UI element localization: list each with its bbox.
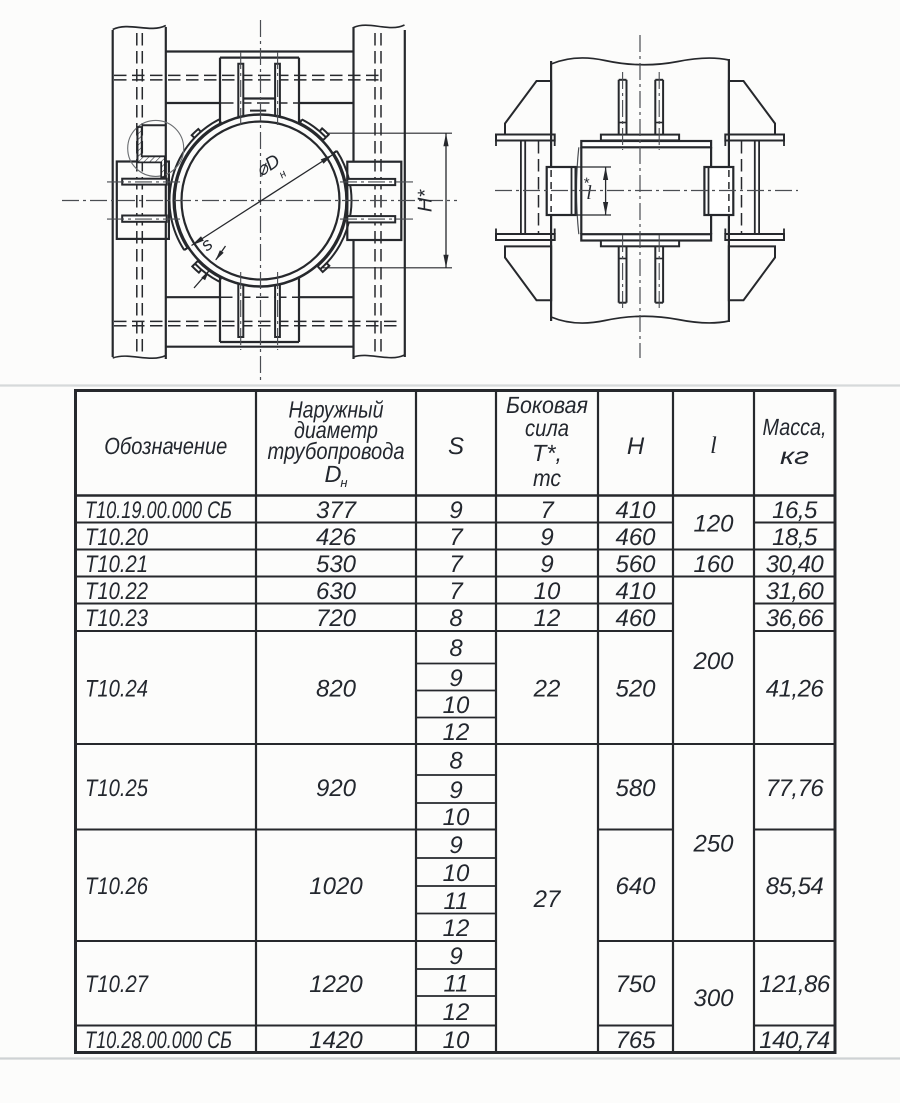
- svg-text:10: 10: [443, 692, 470, 719]
- svg-text:9: 9: [449, 943, 462, 970]
- svg-text:9: 9: [449, 497, 462, 524]
- svg-text:9: 9: [540, 524, 553, 551]
- svg-text:8: 8: [449, 605, 463, 632]
- svg-text:140,74: 140,74: [759, 1027, 830, 1054]
- svg-text:200: 200: [692, 648, 734, 675]
- svg-text:250: 250: [692, 831, 734, 858]
- svg-text:Т10.19.00.000 СБ: Т10.19.00.000 СБ: [85, 497, 232, 524]
- svg-text:9: 9: [449, 777, 462, 804]
- svg-text:12: 12: [443, 915, 470, 942]
- svg-text:9: 9: [449, 832, 462, 859]
- svg-text:77,76: 77,76: [766, 775, 825, 802]
- svg-text:720: 720: [316, 605, 357, 632]
- svg-text:7: 7: [449, 524, 464, 551]
- svg-text:460: 460: [615, 524, 656, 551]
- svg-text:31,60: 31,60: [766, 578, 825, 605]
- svg-text:Обозначение: Обозначение: [104, 433, 227, 459]
- svg-text:7: 7: [449, 578, 464, 605]
- svg-text:8: 8: [449, 748, 463, 775]
- svg-text:7: 7: [540, 497, 555, 524]
- svg-text:Т10.23: Т10.23: [85, 605, 149, 632]
- svg-text:н: н: [340, 475, 347, 490]
- svg-text:l: l: [710, 433, 717, 459]
- svg-text:12: 12: [534, 605, 561, 632]
- svg-text:кг: кг: [780, 443, 810, 469]
- svg-text:580: 580: [615, 775, 656, 802]
- svg-text:Т10.20: Т10.20: [85, 524, 149, 551]
- svg-text:1020: 1020: [309, 873, 363, 900]
- svg-text:12: 12: [443, 719, 470, 746]
- svg-text:18,5: 18,5: [772, 524, 818, 551]
- svg-text:377: 377: [316, 497, 358, 524]
- svg-text:85,54: 85,54: [766, 873, 824, 900]
- svg-text:10: 10: [443, 1027, 470, 1054]
- svg-text:10: 10: [534, 578, 561, 605]
- svg-text:120: 120: [693, 511, 734, 538]
- svg-text:36,66: 36,66: [766, 605, 825, 632]
- svg-text:460: 460: [615, 605, 656, 632]
- svg-text:426: 426: [316, 524, 357, 551]
- svg-text:Т10.22: Т10.22: [85, 578, 148, 605]
- svg-text:820: 820: [316, 676, 357, 703]
- svg-text:Т10.21: Т10.21: [85, 551, 148, 578]
- svg-text:22: 22: [533, 676, 561, 703]
- svg-text:Масса,: Масса,: [763, 414, 827, 440]
- svg-text:30,40: 30,40: [766, 551, 825, 578]
- svg-text:920: 920: [316, 775, 357, 802]
- svg-text:D: D: [325, 461, 342, 487]
- svg-text:9: 9: [540, 551, 553, 578]
- svg-text:16,5: 16,5: [772, 497, 818, 524]
- svg-text:520: 520: [615, 676, 656, 703]
- svg-text:11: 11: [444, 888, 469, 915]
- svg-text:121,86: 121,86: [759, 971, 831, 998]
- svg-text:1220: 1220: [309, 971, 363, 998]
- svg-text:10: 10: [443, 804, 470, 831]
- svg-text:530: 530: [316, 551, 357, 578]
- svg-text:1420: 1420: [309, 1027, 363, 1054]
- svg-text:7: 7: [449, 551, 464, 578]
- svg-text:560: 560: [615, 551, 656, 578]
- svg-text:Т10.26: Т10.26: [85, 873, 149, 900]
- svg-text:8: 8: [449, 635, 463, 662]
- svg-text:27: 27: [533, 886, 562, 913]
- svg-text:S: S: [448, 433, 464, 460]
- svg-text:640: 640: [615, 873, 656, 900]
- svg-text:300: 300: [693, 985, 734, 1012]
- svg-text:750: 750: [615, 971, 656, 998]
- svg-text:410: 410: [615, 578, 656, 605]
- svg-text:Т10.28.00.000 СБ: Т10.28.00.000 СБ: [85, 1027, 232, 1054]
- svg-text:тс: тс: [533, 465, 561, 491]
- svg-text:160: 160: [693, 551, 734, 578]
- svg-text:сила: сила: [525, 415, 569, 441]
- svg-text:630: 630: [316, 578, 357, 605]
- svg-text:Т10.24: Т10.24: [85, 676, 148, 703]
- svg-text:9: 9: [449, 665, 462, 692]
- svg-text:Т*,: Т*,: [532, 440, 562, 466]
- svg-text:Т10.25: Т10.25: [85, 775, 149, 802]
- svg-text:11: 11: [444, 971, 469, 998]
- svg-text:H*: H*: [415, 189, 437, 212]
- svg-text:Т10.27: Т10.27: [85, 971, 149, 998]
- svg-text:41,26: 41,26: [766, 676, 825, 703]
- svg-text:12: 12: [443, 999, 470, 1026]
- svg-text:410: 410: [615, 497, 656, 524]
- svg-text:Н: Н: [627, 433, 645, 460]
- svg-text:10: 10: [443, 860, 470, 887]
- svg-text:765: 765: [615, 1027, 656, 1054]
